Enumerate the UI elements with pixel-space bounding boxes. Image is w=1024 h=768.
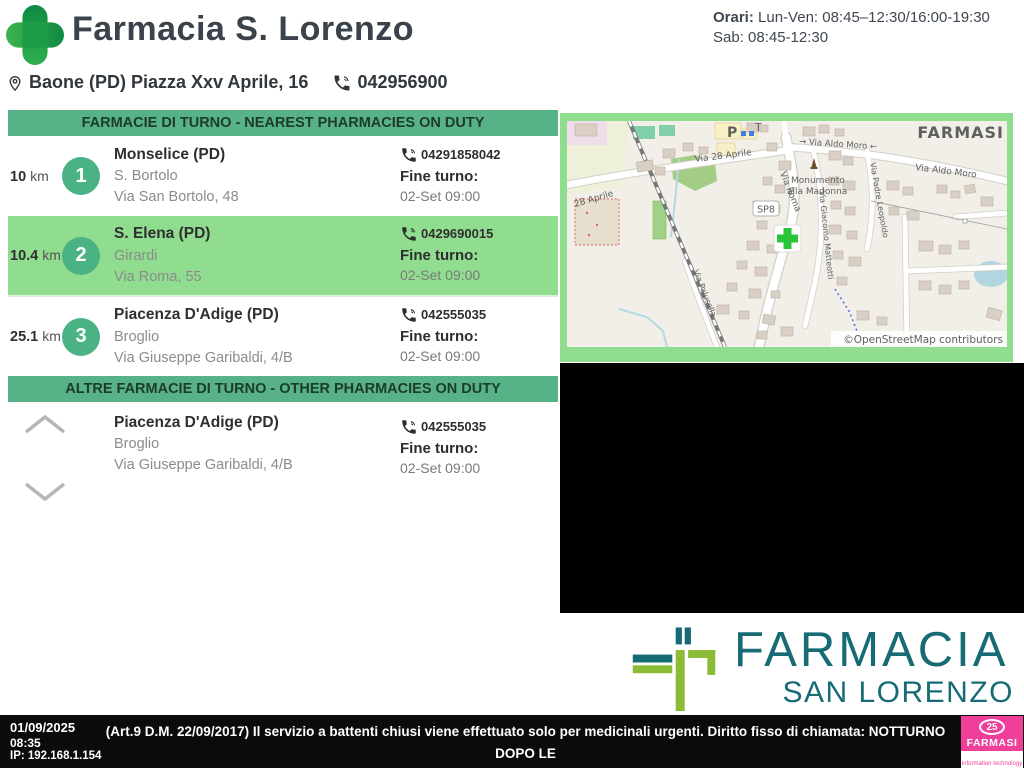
footer-ip: IP: 192.168.1.154 bbox=[10, 750, 101, 764]
pharmacy-address: Baone (PD) Piazza Xxv Aprile, 16 bbox=[29, 72, 308, 93]
map-attribution: ©OpenStreetMap contributors bbox=[831, 331, 1007, 347]
rank-badge: 3 bbox=[62, 318, 100, 356]
farmasi-logo: 25 FARMASI information technology bbox=[961, 716, 1023, 768]
pharmacy-city: Piacenza D'Adige (PD) bbox=[114, 304, 400, 326]
fine-turno-label: Fine turno: bbox=[400, 166, 558, 187]
location-pin-icon bbox=[6, 73, 24, 93]
phone-icon bbox=[400, 225, 418, 243]
farmasi-25-badge: 25 bbox=[979, 719, 1005, 735]
fine-turno-label: Fine turno: bbox=[400, 326, 558, 347]
footer-notice-line2: 22 A BATTENTI CHIUSI: €10,00 (Art.9 D.M.… bbox=[105, 764, 946, 768]
duty-phone: 04291858042 bbox=[421, 146, 501, 164]
farmasi-watermark: FARMASI bbox=[917, 123, 1004, 142]
sp8-route-badge: SP8 bbox=[753, 201, 779, 216]
distance: 10 km bbox=[8, 168, 62, 185]
footer-time: 08:35 bbox=[10, 736, 101, 750]
pharmacy-name: S. Bortolo bbox=[114, 166, 400, 187]
other-pharmacy-row[interactable]: Piacenza D'Adige (PD) Broglio Via Giusep… bbox=[8, 402, 558, 514]
fine-turno-label: Fine turno: bbox=[400, 245, 558, 266]
pharmacy-row-3[interactable]: 25.1 km 3 Piacenza D'Adige (PD) Broglio … bbox=[8, 296, 558, 376]
pharmacy-name: Broglio bbox=[114, 434, 400, 455]
footer-notice-line1: (Art.9 D.M. 22/09/2017) Il servizio a ba… bbox=[105, 721, 946, 764]
map-widget[interactable]: Via 28 Aprile 28 Aprile → Via Aldo Moro … bbox=[560, 113, 1013, 362]
phone-icon bbox=[400, 418, 418, 436]
page-title: Farmacia S. Lorenzo bbox=[72, 10, 414, 49]
distance: 25.1 km bbox=[8, 328, 62, 345]
duty-phone: 042555035 bbox=[421, 306, 486, 324]
fine-turno-value: 02-Set 09:00 bbox=[400, 347, 558, 367]
duty-phone: 042555035 bbox=[421, 418, 486, 436]
pharmacy-city: Monselice (PD) bbox=[114, 144, 400, 166]
opening-hours-label: Orari: bbox=[713, 9, 754, 26]
pharmacy-name: Broglio bbox=[114, 327, 400, 348]
pharmacy-kiosk-screen: Farmacia S. Lorenzo Orari: Lun-Ven: 08:4… bbox=[0, 0, 1024, 768]
fine-turno-value: 02-Set 09:00 bbox=[400, 266, 558, 286]
phone-icon bbox=[400, 146, 418, 164]
pharmacy-street: Via Giuseppe Garibaldi, 4/B bbox=[114, 348, 400, 369]
phone-icon bbox=[400, 306, 418, 324]
other-banner: ALTRE FARMACIE DI TURNO - OTHER PHARMACI… bbox=[8, 376, 558, 402]
rank-badge: 2 bbox=[62, 237, 100, 275]
phone-icon bbox=[332, 73, 352, 93]
monument-label: Monumento bbox=[791, 176, 845, 186]
pharmacy-city: S. Elena (PD) bbox=[114, 223, 400, 245]
brand-cross-icon bbox=[626, 621, 722, 713]
duty-pharmacies-panel: FARMACIE DI TURNO - NEAREST PHARMACIES O… bbox=[8, 110, 558, 514]
pharmacy-row-2-selected[interactable]: 10.4 km 2 S. Elena (PD) Girardi Via Roma… bbox=[8, 216, 558, 296]
fine-turno-value: 02-Set 09:00 bbox=[400, 459, 558, 479]
pharmacy-phone: 042956900 bbox=[357, 72, 447, 93]
footer-notice: (Art.9 D.M. 22/09/2017) Il servizio a ba… bbox=[105, 721, 946, 768]
brand-name-line2: SAN LORENZO bbox=[734, 678, 1014, 708]
svg-text:©OpenStreetMap contributors: ©OpenStreetMap contributors bbox=[843, 334, 1003, 346]
pharmacy-name: Girardi bbox=[114, 246, 400, 267]
opening-hours: Orari: Lun-Ven: 08:45–12:30/16:00-19:30 … bbox=[713, 8, 1018, 49]
farmasi-tagline: information technology bbox=[962, 761, 1022, 767]
opening-hours-text: Lun-Ven: 08:45–12:30/16:00-19:30 Sab: 08… bbox=[713, 9, 990, 46]
svg-text:SP8: SP8 bbox=[757, 205, 775, 216]
scroll-down-icon[interactable] bbox=[23, 480, 67, 504]
brand-name-line1: FARMACIA bbox=[734, 626, 1014, 675]
footer-date: 01/09/2025 bbox=[10, 720, 101, 736]
pharmacy-cross-icon bbox=[6, 4, 64, 66]
pharmacy-address-line: Baone (PD) Piazza Xxv Aprile, 16 0429569… bbox=[6, 72, 448, 93]
pharmacy-street: Via Roma, 55 bbox=[114, 267, 400, 288]
nearest-banner: FARMACIE DI TURNO - NEAREST PHARMACIES O… bbox=[8, 110, 558, 136]
openstreetmap-canvas[interactable]: Via 28 Aprile 28 Aprile → Via Aldo Moro … bbox=[567, 121, 1007, 347]
fine-turno-label: Fine turno: bbox=[400, 438, 558, 459]
video-panel bbox=[560, 363, 1024, 613]
farmasi-name: FARMASI bbox=[967, 737, 1018, 749]
distance: 10.4 km bbox=[8, 247, 62, 264]
footer-bar: 01/09/2025 08:35 IP: 192.168.1.154 (Art.… bbox=[0, 715, 1024, 768]
scroll-up-icon[interactable] bbox=[23, 412, 67, 436]
parking-icon: P bbox=[727, 125, 737, 141]
pharmacy-city: Piacenza D'Adige (PD) bbox=[114, 412, 400, 434]
telecom-icon: T bbox=[754, 121, 762, 134]
fine-turno-value: 02-Set 09:00 bbox=[400, 187, 558, 207]
pharmacy-row-1[interactable]: 10 km 1 Monselice (PD) S. Bortolo Via Sa… bbox=[8, 136, 558, 216]
pharmacy-map-marker bbox=[774, 225, 801, 252]
duty-phone: 0429690015 bbox=[421, 225, 493, 243]
pharmacy-street: Via San Bortolo, 48 bbox=[114, 187, 400, 208]
pharmacy-street: Via Giuseppe Garibaldi, 4/B bbox=[114, 455, 400, 476]
brand-logo: FARMACIA SAN LORENZO bbox=[626, 620, 1014, 714]
rank-badge: 1 bbox=[62, 157, 100, 195]
